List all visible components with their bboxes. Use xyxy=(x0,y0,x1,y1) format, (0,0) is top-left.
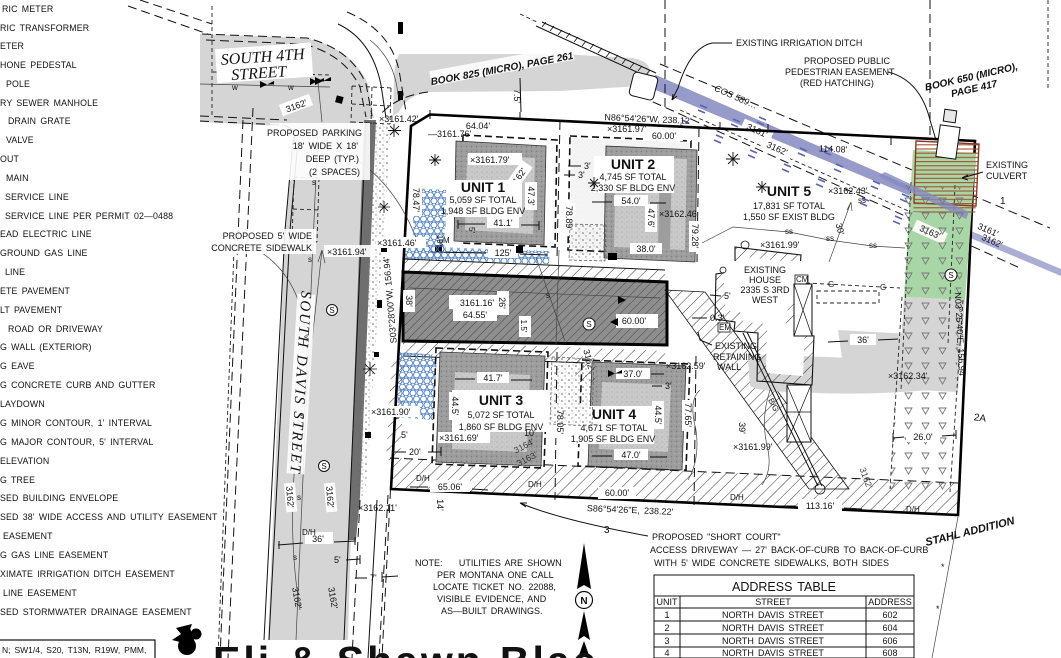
svg-text:14': 14' xyxy=(435,499,445,511)
svg-text:N; SW1/4, S20, T13N, R19W, PMM: N; SW1/4, S20, T13N, R19W, PMM, xyxy=(2,645,146,655)
svg-text:VALVE: VALVE xyxy=(6,135,34,145)
svg-text:s: s xyxy=(293,553,297,562)
svg-text:DEEP (TYP.): DEEP (TYP.) xyxy=(306,154,359,164)
svg-text:EASEMENT: EASEMENT xyxy=(3,531,53,541)
svg-text:26.0': 26.0' xyxy=(913,432,933,442)
svg-text:LINE: LINE xyxy=(5,267,25,277)
svg-text:S03°28'00"W, 156.94': S03°28'00"W, 156.94' xyxy=(381,256,399,344)
svg-text:WITH 5' WIDE CONCRETE SIDE: WITH 5' WIDE CONCRETE SIDEWALKS, BOTH SI… xyxy=(654,558,889,568)
svg-text:PER MONTANA ONE CALL: PER MONTANA ONE CALL xyxy=(437,570,554,580)
svg-text:PROPOSED PARKING: PROPOSED PARKING xyxy=(267,128,362,138)
svg-text:4: 4 xyxy=(664,648,669,658)
svg-text:*: * xyxy=(941,562,945,572)
svg-text:41.7': 41.7' xyxy=(483,373,503,383)
svg-text:×3161.97': ×3161.97' xyxy=(607,124,647,134)
svg-text:60.00': 60.00' xyxy=(605,488,630,498)
svg-text:OUT: OUT xyxy=(0,154,19,164)
svg-text:D/H: D/H xyxy=(416,474,430,483)
svg-text:s: s xyxy=(297,493,301,502)
svg-text:47.0': 47.0' xyxy=(621,450,641,460)
svg-text:UNIT 5: UNIT 5 xyxy=(767,183,812,199)
svg-text:5,072 SF TOTAL: 5,072 SF TOTAL xyxy=(467,410,534,420)
svg-text:—3161.76': —3161.76' xyxy=(428,129,472,139)
svg-text:3161.16': 3161.16' xyxy=(460,298,495,308)
svg-text:606: 606 xyxy=(882,636,897,646)
svg-text:*: * xyxy=(936,604,940,614)
svg-text:604: 604 xyxy=(882,623,897,633)
svg-text:ADDRESS TABLE: ADDRESS TABLE xyxy=(732,580,836,594)
svg-text:MAIN: MAIN xyxy=(6,173,29,183)
svg-text:G MAJOR CONTOUR, 5' INTERV: G MAJOR CONTOUR, 5' INTERVAL xyxy=(0,437,154,447)
svg-text:G TREE: G TREE xyxy=(0,475,35,485)
svg-text:17,831 SF TOTAL: 17,831 SF TOTAL xyxy=(753,201,825,211)
svg-text:s: s xyxy=(304,333,308,342)
svg-text:×3162.43': ×3162.43' xyxy=(828,186,868,196)
svg-text:SED BUILDING ENVELOPE: SED BUILDING ENVELOPE xyxy=(0,493,118,503)
svg-text:S: S xyxy=(321,462,326,471)
svg-text:NORTH DAVIS STREET: NORTH DAVIS STREET xyxy=(722,610,824,620)
svg-text:7': 7' xyxy=(370,573,377,583)
svg-text:26': 26' xyxy=(497,297,507,309)
svg-text:EXISTING IRRIGATION DITCH: EXISTING IRRIGATION DITCH xyxy=(736,38,862,48)
svg-text:602: 602 xyxy=(882,610,897,620)
svg-text:0.3': 0.3' xyxy=(710,313,725,323)
svg-text:G CONCRETE CURB AND GUTTER: G CONCRETE CURB AND GUTTER xyxy=(0,380,155,390)
svg-text:60.00': 60.00' xyxy=(622,316,647,326)
svg-text:×3162.59': ×3162.59' xyxy=(666,361,706,371)
svg-text:77.65': 77.65' xyxy=(683,403,693,428)
svg-text:65.06': 65.06' xyxy=(438,482,463,492)
svg-text:GROUND GAS LINE: GROUND GAS LINE xyxy=(0,248,88,258)
svg-text:STREET: STREET xyxy=(755,597,791,607)
svg-text:PROPOSED PUBLIC: PROPOSED PUBLIC xyxy=(804,56,891,66)
svg-text:PEDESTRIAN EASEMENT: PEDESTRIAN EASEMENT xyxy=(785,67,895,77)
svg-text:G GAS LINE EASEMENT: G GAS LINE EASEMENT xyxy=(0,550,109,560)
svg-text:NORTH DAVIS STREET: NORTH DAVIS STREET xyxy=(722,648,824,658)
svg-text:XIMATE IRRIGATION DITCH EAS: XIMATE IRRIGATION DITCH EASEMENT xyxy=(0,569,175,579)
svg-text:EXISTING: EXISTING xyxy=(986,160,1028,170)
svg-text:ss: ss xyxy=(858,196,866,205)
svg-text:54.0': 54.0' xyxy=(621,196,641,206)
svg-text:LINE EASEMENT: LINE EASEMENT xyxy=(3,588,77,598)
svg-text:D/H: D/H xyxy=(906,505,920,514)
svg-text:×3161.94': ×3161.94' xyxy=(327,247,367,257)
svg-text:47.3': 47.3' xyxy=(526,186,536,206)
svg-text:DRAIN GRATE: DRAIN GRATE xyxy=(8,116,71,126)
svg-text:5': 5' xyxy=(334,555,341,565)
svg-text:608: 608 xyxy=(882,648,897,658)
svg-text:LAYDOWN: LAYDOWN xyxy=(0,399,45,409)
svg-text:STAHL ADDITION: STAHL ADDITION xyxy=(924,515,1017,549)
svg-text:NORTH DAVIS STREET: NORTH DAVIS STREET xyxy=(722,636,824,646)
svg-text:RIC TRANSFORMER: RIC TRANSFORMER xyxy=(0,23,89,33)
svg-text:(2 SPACES): (2 SPACES) xyxy=(309,167,360,177)
svg-text:3162': 3162' xyxy=(324,486,336,509)
svg-text:2: 2 xyxy=(664,623,669,633)
svg-text:ETER: ETER xyxy=(0,41,24,51)
svg-text:30': 30' xyxy=(834,222,847,236)
svg-text:3: 3 xyxy=(664,636,669,646)
svg-text:19': 19' xyxy=(435,235,444,246)
svg-text:2A: 2A xyxy=(973,412,987,425)
svg-text:×3161.99': ×3161.99' xyxy=(760,240,800,250)
svg-text:UNIT 3: UNIT 3 xyxy=(479,392,524,408)
svg-text:ROAD OR DRIVEWAY: ROAD OR DRIVEWAY xyxy=(8,324,103,334)
svg-text:ss: ss xyxy=(785,227,793,236)
svg-text:113.16': 113.16' xyxy=(806,501,835,511)
svg-text:ss: ss xyxy=(869,241,877,250)
svg-text:PROPOSED "SHORT COURT": PROPOSED "SHORT COURT" xyxy=(652,532,781,542)
svg-text:UNIT: UNIT xyxy=(657,597,678,607)
svg-text:47.6': 47.6' xyxy=(646,208,656,228)
svg-text:ADDRESS: ADDRESS xyxy=(868,597,912,607)
svg-text:ELEVATION: ELEVATION xyxy=(0,456,49,466)
svg-text:×3161.46': ×3161.46' xyxy=(377,238,417,248)
svg-text:D/H: D/H xyxy=(528,480,542,489)
svg-text:ss: ss xyxy=(826,234,834,243)
svg-text:RIC METER: RIC METER xyxy=(2,4,53,14)
svg-text:SERVICE LINE PER PERMIT 02: SERVICE LINE PER PERMIT 02—0488 xyxy=(5,211,173,221)
svg-text:s: s xyxy=(300,411,304,420)
svg-text:S86°54'26"E, 238.22': S86°54'26"E, 238.22' xyxy=(587,503,674,517)
svg-text:G: G xyxy=(828,280,834,289)
svg-text:S: S xyxy=(586,320,591,329)
svg-text:HOUSE: HOUSE xyxy=(749,275,781,285)
svg-text:G: G xyxy=(880,283,886,292)
svg-text:PROPOSED 5' WIDE: PROPOSED 5' WIDE xyxy=(223,231,312,241)
svg-text:CONCRETE SIDEWALK: CONCRETE SIDEWALK xyxy=(211,243,312,253)
svg-text:×3161.42': ×3161.42' xyxy=(379,114,419,124)
svg-text:LOCATE TICKET NO. 22088,: LOCATE TICKET NO. 22088, xyxy=(433,582,556,592)
svg-text:SED 38' WIDE ACCESS AND U: SED 38' WIDE ACCESS AND UTILITY EASEMENT xyxy=(0,512,218,522)
svg-text:125': 125' xyxy=(495,248,512,258)
svg-text:37.0': 37.0' xyxy=(623,369,643,379)
svg-text:5': 5' xyxy=(724,291,731,301)
svg-text:Eli & Shawn Blac: Eli & Shawn Blac xyxy=(213,638,598,658)
svg-text:×3162.46: ×3162.46 xyxy=(659,209,697,219)
svg-text:1: 1 xyxy=(1000,196,1006,207)
svg-text:41.1': 41.1' xyxy=(493,218,513,228)
svg-text:79.28': 79.28' xyxy=(690,224,700,249)
svg-text:38.0': 38.0' xyxy=(636,244,656,254)
svg-text:N: N xyxy=(580,596,587,607)
svg-text:1: 1 xyxy=(664,610,669,620)
svg-text:36': 36' xyxy=(857,335,869,345)
svg-text:UNIT 1: UNIT 1 xyxy=(461,179,506,195)
svg-text:SED STORMWATER DRAINAGE EAS: SED STORMWATER DRAINAGE EASEMENT xyxy=(0,607,192,617)
svg-text:1.5': 1.5' xyxy=(519,320,528,333)
svg-text:HONE PEDESTAL: HONE PEDESTAL xyxy=(0,60,77,70)
svg-text:3': 3' xyxy=(584,161,591,171)
svg-text:44.5': 44.5' xyxy=(450,396,460,416)
svg-text:G WALL (EXTERIOR): G WALL (EXTERIOR) xyxy=(0,342,92,352)
svg-text:UNIT 4: UNIT 4 xyxy=(592,406,637,422)
svg-text:4,745 SF TOTAL: 4,745 SF TOTAL xyxy=(599,172,666,182)
svg-text:RETAINING: RETAINING xyxy=(713,352,761,362)
svg-text:ETE PAVEMENT: ETE PAVEMENT xyxy=(0,286,71,296)
svg-text:3: 3 xyxy=(604,525,610,536)
svg-text:(RED HATCHING): (RED HATCHING) xyxy=(800,78,874,88)
svg-text:CULVERT: CULVERT xyxy=(986,171,1028,181)
svg-text:5': 5' xyxy=(401,430,408,440)
svg-text:3162': 3162' xyxy=(284,486,296,509)
svg-text:NOTE: UTILITIES ARE SHOWN: NOTE: UTILITIES ARE SHOWN xyxy=(415,558,562,568)
svg-text:ACCESS DRIVEWAY — 27' BACK: ACCESS DRIVEWAY — 27' BACK-OF-CURB TO BA… xyxy=(650,545,928,555)
svg-text:LT PAVEMENT: LT PAVEMENT xyxy=(0,305,63,315)
svg-text:×3162.34': ×3162.34' xyxy=(888,371,928,381)
svg-text:3': 3' xyxy=(665,381,672,391)
svg-text:s: s xyxy=(546,291,550,300)
svg-text:2335 S 3RD: 2335 S 3RD xyxy=(740,285,790,295)
svg-text:39': 39' xyxy=(737,422,747,434)
svg-text:×3162.11': ×3162.11' xyxy=(358,503,397,513)
svg-text:×3161.90': ×3161.90' xyxy=(371,407,411,417)
svg-text:WEST: WEST xyxy=(752,295,779,305)
svg-text:2,330 SF BLDG ENV: 2,330 SF BLDG ENV xyxy=(591,183,676,193)
svg-text:1,905 SF BLDG ENV: 1,905 SF BLDG ENV xyxy=(571,434,656,444)
svg-text:w: w xyxy=(287,83,294,92)
svg-text:18' WIDE X 18': 18' WIDE X 18' xyxy=(293,141,359,151)
svg-text:G EAVE: G EAVE xyxy=(0,361,35,371)
svg-text:SERVICE LINE: SERVICE LINE xyxy=(5,192,69,202)
svg-text:3': 3' xyxy=(578,170,585,180)
svg-text:w: w xyxy=(231,83,238,92)
svg-text:S: S xyxy=(329,306,334,315)
svg-text:38': 38' xyxy=(404,295,414,307)
svg-text:44.5': 44.5' xyxy=(653,405,663,425)
svg-text:5': 5' xyxy=(467,227,476,233)
svg-text:s: s xyxy=(308,255,312,264)
svg-text:D/H: D/H xyxy=(302,528,316,537)
svg-text:UNIT 2: UNIT 2 xyxy=(611,156,656,172)
svg-text:×3161.79': ×3161.79' xyxy=(470,155,510,165)
svg-text:D/H: D/H xyxy=(730,493,744,502)
svg-text:EM: EM xyxy=(719,323,731,332)
svg-text:EXISTING: EXISTING xyxy=(744,265,786,275)
svg-text:EAD ELECTRIC LINE: EAD ELECTRIC LINE xyxy=(0,229,92,239)
svg-text:60.00': 60.00' xyxy=(652,131,677,141)
svg-text:VISIBLE EVIDENCE, AND: VISIBLE EVIDENCE, AND xyxy=(437,594,547,604)
svg-text:78.47': 78.47' xyxy=(411,188,421,213)
svg-text:64.55': 64.55' xyxy=(463,310,488,320)
svg-text:G MINOR CONTOUR, 1' INTERV: G MINOR CONTOUR, 1' INTERVAL xyxy=(0,418,152,428)
svg-text:20': 20' xyxy=(409,447,421,457)
svg-text:×3161.69': ×3161.69' xyxy=(439,433,479,443)
svg-text:5,059 SF TOTAL: 5,059 SF TOTAL xyxy=(449,195,516,205)
svg-text:NORTH DAVIS STREET: NORTH DAVIS STREET xyxy=(722,623,824,633)
svg-text:114.08': 114.08' xyxy=(819,143,848,154)
svg-text:POLE: POLE xyxy=(6,79,30,89)
svg-text:1,948 SF BLDG ENV: 1,948 SF BLDG ENV xyxy=(441,206,526,216)
svg-text:WALL: WALL xyxy=(717,362,741,372)
svg-text:1,550 SF EXIST BLDG: 1,550 SF EXIST BLDG xyxy=(743,212,835,222)
svg-text:RY SEWER MANHOLE: RY SEWER MANHOLE xyxy=(0,98,98,108)
svg-text:S: S xyxy=(948,271,953,280)
svg-text:AS—BUILT DRAWINGS.: AS—BUILT DRAWINGS. xyxy=(441,606,542,616)
